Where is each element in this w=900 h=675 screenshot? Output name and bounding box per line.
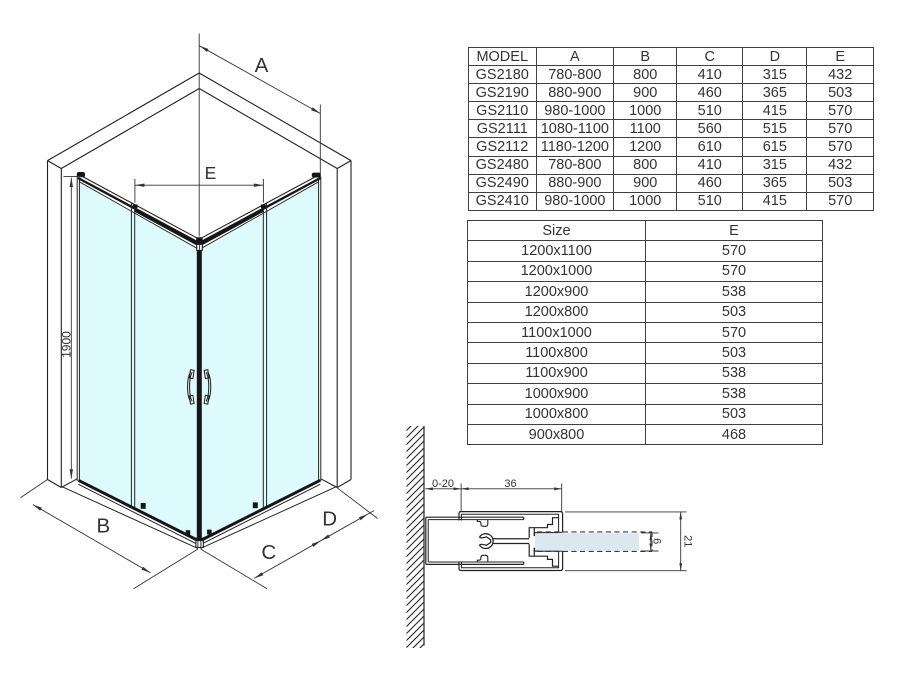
svg-text:1900: 1900 (60, 331, 74, 358)
svg-text:B: B (96, 515, 110, 538)
svg-text:36: 36 (504, 478, 516, 490)
svg-text:A: A (255, 54, 269, 77)
svg-text:C: C (261, 541, 276, 564)
svg-text:21: 21 (682, 535, 694, 547)
svg-text:6: 6 (650, 538, 662, 544)
svg-text:0-20: 0-20 (432, 478, 454, 490)
svg-text:D: D (322, 507, 337, 530)
svg-text:E: E (205, 163, 217, 183)
